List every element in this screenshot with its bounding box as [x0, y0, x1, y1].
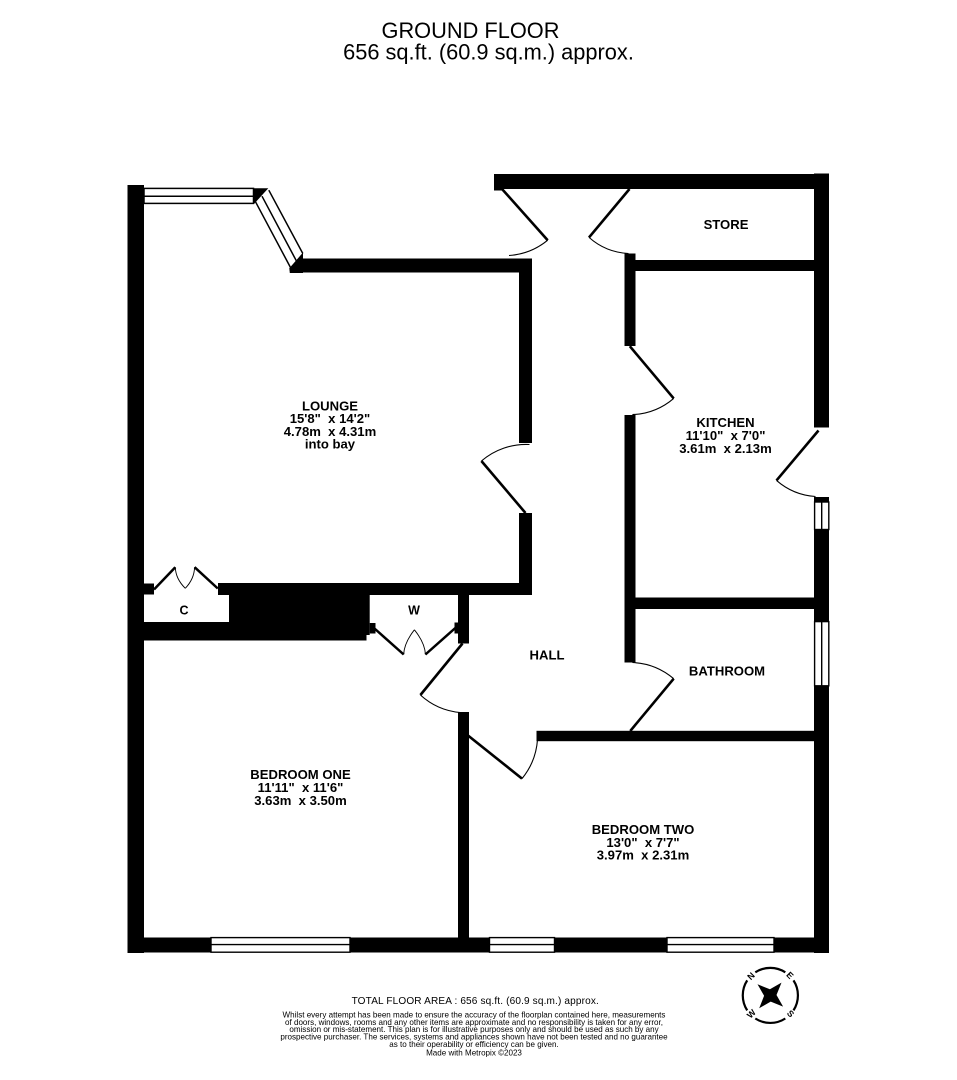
svg-text:3.63m x 3.50m: 3.63m x 3.50m [254, 793, 346, 808]
svg-text:TOTAL FLOOR AREA : 656 sq.ft.: TOTAL FLOOR AREA : 656 sq.ft. (60.9 sq.m… [352, 996, 599, 1007]
svg-text:BATHROOM: BATHROOM [689, 664, 765, 679]
svg-text:HALL: HALL [530, 648, 565, 663]
svg-text:3.61m x 2.13m: 3.61m x 2.13m [679, 441, 771, 456]
svg-text:3.97m x 2.31m: 3.97m x 2.31m [597, 848, 689, 863]
svg-text:W: W [408, 603, 420, 617]
svg-text:Made with Metropix ©2023: Made with Metropix ©2023 [426, 1048, 522, 1057]
svg-text:656 sq.ft. (60.9 sq.m.) approx: 656 sq.ft. (60.9 sq.m.) approx. [343, 40, 634, 65]
svg-text:C: C [179, 603, 188, 617]
svg-text:STORE: STORE [704, 217, 749, 232]
svg-text:into bay: into bay [305, 437, 356, 452]
